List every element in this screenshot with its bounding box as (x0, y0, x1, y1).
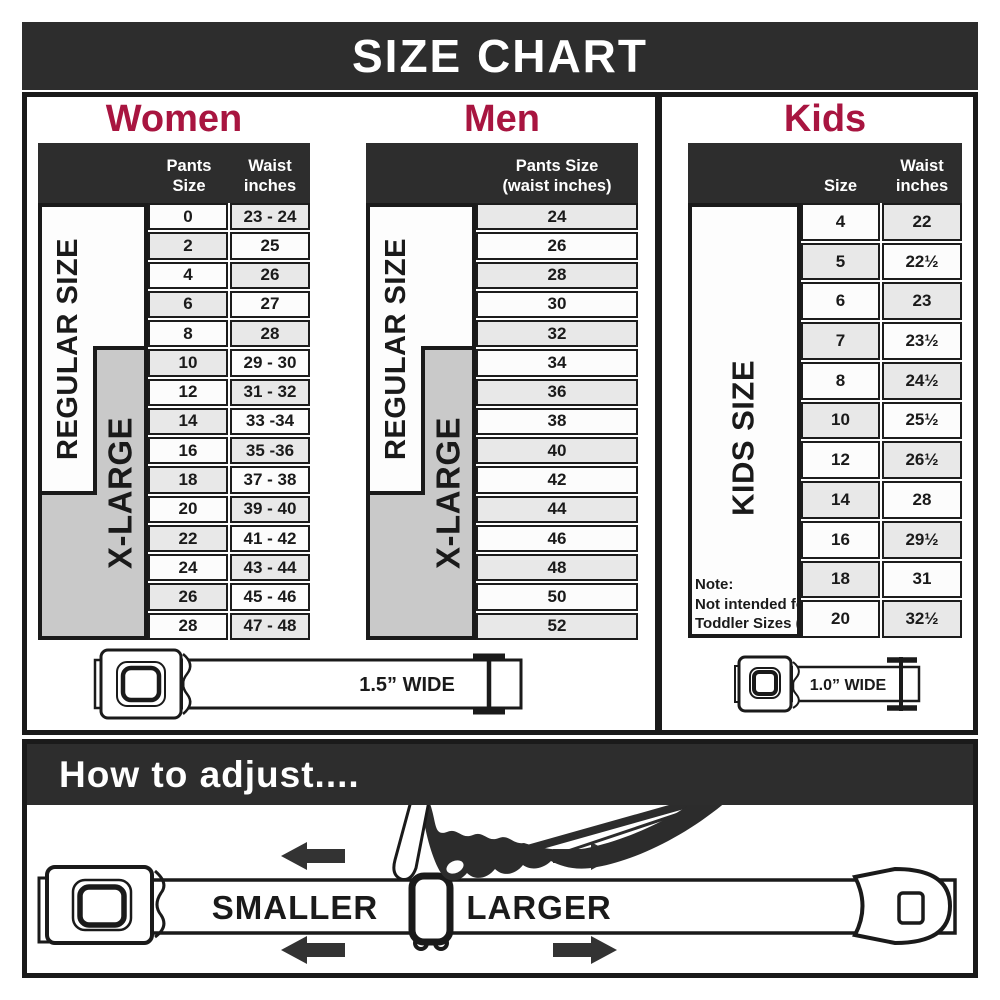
men-table-cells: 24 26 28 30 32 34 36 38 40 42 (476, 203, 638, 640)
kids-size-cell: 20 (801, 600, 880, 638)
kids-waist-cell: 23 (882, 282, 962, 320)
women-xlarge-label: X-LARGE (102, 417, 139, 569)
men-col-header: Pants Size (waist inches) (476, 157, 638, 196)
page-title: SIZE CHART (352, 29, 648, 83)
kids-waist-cell: 26½ (882, 441, 962, 479)
size-chart-infographic: SIZE CHART Women Men Kids Pants Size Wai… (0, 0, 1000, 1000)
men-size-table: Pants Size (waist inches) REGULAR SIZE X… (366, 143, 638, 640)
kids-waist-cell: 29½ (882, 521, 962, 559)
kids-heading: Kids (688, 99, 962, 139)
women-pants-size-cell: 22 (148, 525, 228, 552)
belt-strap-icon (183, 660, 521, 708)
men-heading: Men (366, 99, 638, 139)
kids-col2-header: Waist inches (882, 157, 962, 196)
women-waist-cell: 45 - 46 (230, 583, 310, 610)
kids-waist-cell: 28 (882, 481, 962, 519)
arrow-left-icon (281, 842, 345, 870)
women-pants-size-cell: 24 (148, 554, 228, 581)
kids-size-cell: 18 (801, 561, 880, 599)
women-waist-cell: 37 - 38 (230, 466, 310, 493)
panel-divider (655, 97, 662, 730)
women-pants-size-cell: 26 (148, 583, 228, 610)
men-pants-size-cell: 42 (476, 466, 638, 493)
women-pants-size-cell: 0 (148, 203, 228, 230)
smaller-label: SMALLER (212, 889, 379, 926)
size-tables-panel: Women Men Kids Pants Size Waist inches R… (22, 92, 978, 735)
women-pants-size-cell: 14 (148, 408, 228, 435)
adjust-heading: How to adjust.... (27, 754, 360, 796)
kids-waist-cell: 32½ (882, 600, 962, 638)
men-side-labels: REGULAR SIZE X-LARGE (366, 203, 476, 640)
buckle-button-icon (754, 672, 776, 694)
women-waist-cell: 47 - 48 (230, 613, 310, 640)
kids-waist-cell: 22½ (882, 243, 962, 281)
women-pants-size-cell: 4 (148, 262, 228, 289)
kids-size-cell: 10 (801, 402, 880, 440)
women-table-cells: 0 23 - 24 2 25 4 26 6 27 8 28 10 29 - 30 (148, 203, 310, 640)
women-waist-cell: 28 (230, 320, 310, 347)
men-regular-label: REGULAR SIZE (380, 238, 412, 460)
kids-table-header: Size Waist inches (688, 143, 962, 203)
kids-waist-cell: 25½ (882, 402, 962, 440)
kids-size-label: KIDS SIZE (726, 360, 761, 516)
arrow-right-icon (553, 936, 617, 964)
women-waist-cell: 27 (230, 291, 310, 318)
kids-note-line1: Note: (695, 576, 733, 593)
women-pants-size-cell: 20 (148, 496, 228, 523)
men-table-header: Pants Size (waist inches) (366, 143, 638, 203)
kids-belt-width-label: 1.0” WIDE (810, 677, 887, 694)
women-waist-cell: 25 (230, 232, 310, 259)
kids-note-line2: Not intended for (695, 596, 801, 613)
kids-belt-icon: 1.0” WIDE (733, 653, 929, 715)
kids-size-cell: 8 (801, 362, 880, 400)
kids-size-cell: 5 (801, 243, 880, 281)
women-pants-size-cell: 12 (148, 379, 228, 406)
women-size-table: Pants Size Waist inches REGULAR SIZE X-L… (38, 143, 310, 640)
adjust-illustration: SMALLER LARGER (27, 805, 973, 968)
women-table-header: Pants Size Waist inches (38, 143, 310, 203)
adult-belt-icon: 1.5” WIDE (93, 648, 525, 722)
kids-size-cell: 12 (801, 441, 880, 479)
women-pants-size-cell: 2 (148, 232, 228, 259)
men-pants-size-cell: 44 (476, 496, 638, 523)
women-waist-cell: 29 - 30 (230, 349, 310, 376)
kids-waist-cell: 31 (882, 561, 962, 599)
kids-table-cells: 4 22 5 22½ 6 23 7 23½ 8 24½ 10 25½ (801, 203, 962, 638)
men-xlarge-label: X-LARGE (430, 417, 467, 569)
kids-size-table: Size Waist inches KIDS SIZE Note: Not in… (688, 143, 962, 638)
kids-size-cell: 4 (801, 203, 880, 241)
kids-waist-cell: 22 (882, 203, 962, 241)
women-waist-cell: 26 (230, 262, 310, 289)
women-pants-size-cell: 6 (148, 291, 228, 318)
women-regular-label: REGULAR SIZE (52, 238, 84, 460)
kids-size-cell: 16 (801, 521, 880, 559)
women-waist-cell: 41 - 42 (230, 525, 310, 552)
kids-side-labels: KIDS SIZE Note: Not intended for Toddler… (688, 203, 801, 638)
men-pants-size-cell: 28 (476, 262, 638, 289)
men-pants-size-cell: 40 (476, 437, 638, 464)
men-pants-size-cell: 24 (476, 203, 638, 230)
men-pants-size-cell: 34 (476, 349, 638, 376)
kids-size-cell: 6 (801, 282, 880, 320)
men-pants-size-cell: 26 (476, 232, 638, 259)
women-col1-header: Pants Size (148, 157, 230, 196)
kids-waist-cell: 23½ (882, 322, 962, 360)
men-pants-size-cell: 32 (476, 320, 638, 347)
kids-waist-cell: 24½ (882, 362, 962, 400)
women-side-labels: REGULAR SIZE X-LARGE (38, 203, 148, 640)
title-banner: SIZE CHART (22, 22, 978, 90)
women-pants-size-cell: 18 (148, 466, 228, 493)
men-pants-size-cell: 50 (476, 583, 638, 610)
arrow-left-icon (281, 936, 345, 964)
women-pants-size-cell: 16 (148, 437, 228, 464)
women-waist-cell: 23 - 24 (230, 203, 310, 230)
women-waist-cell: 33 -34 (230, 408, 310, 435)
women-waist-cell: 35 -36 (230, 437, 310, 464)
men-pants-size-cell: 46 (476, 525, 638, 552)
how-to-adjust-panel: How to adjust.... SMALLER LARGER (22, 739, 978, 978)
men-pants-size-cell: 52 (476, 613, 638, 640)
men-pants-size-cell: 30 (476, 291, 638, 318)
women-pants-size-cell: 8 (148, 320, 228, 347)
women-pants-size-cell: 10 (148, 349, 228, 376)
women-heading: Women (38, 99, 310, 139)
buckle-button-icon (80, 887, 124, 925)
women-pants-size-cell: 28 (148, 613, 228, 640)
kids-size-cell: 14 (801, 481, 880, 519)
kids-note-line3: Toddler Sizes (T) (695, 615, 801, 632)
men-pants-size-cell: 38 (476, 408, 638, 435)
women-waist-cell: 39 - 40 (230, 496, 310, 523)
belt-slider-icon (412, 876, 450, 942)
men-pants-size-cell: 36 (476, 379, 638, 406)
buckle-button-icon (123, 668, 159, 700)
adjust-banner: How to adjust.... (27, 744, 973, 805)
women-waist-cell: 43 - 44 (230, 554, 310, 581)
larger-label: LARGER (466, 889, 611, 926)
women-col2-header: Waist inches (230, 157, 310, 196)
finger-icon (394, 805, 429, 880)
adult-belt-width-label: 1.5” WIDE (359, 674, 455, 696)
kids-col1-header: Size (801, 177, 880, 196)
kids-size-cell: 7 (801, 322, 880, 360)
men-pants-size-cell: 48 (476, 554, 638, 581)
hand-icon (423, 805, 727, 881)
women-waist-cell: 31 - 32 (230, 379, 310, 406)
